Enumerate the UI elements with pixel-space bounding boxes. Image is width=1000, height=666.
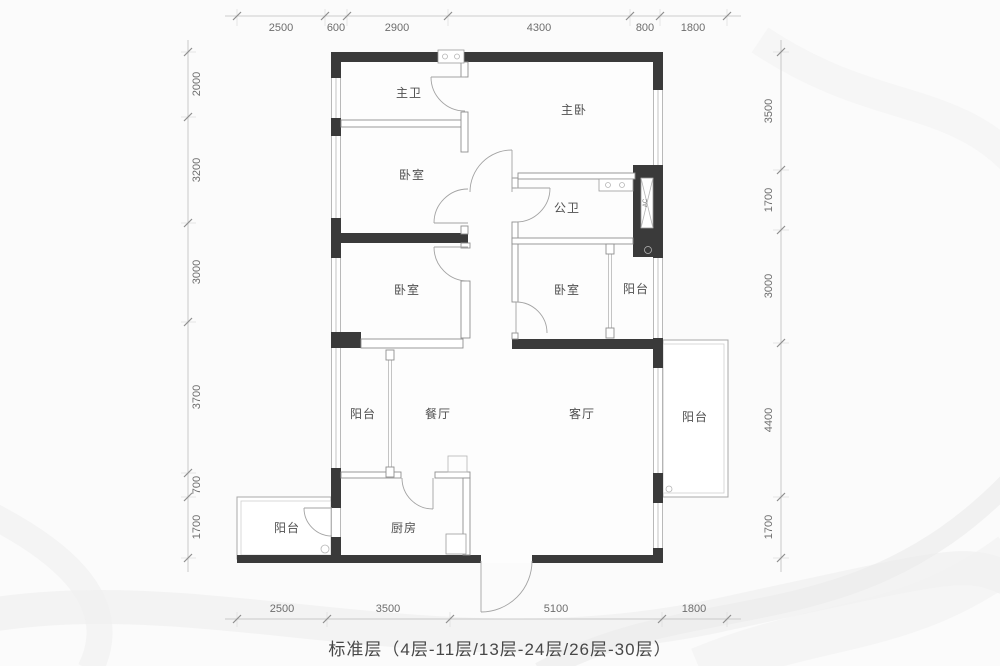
room-label-balcony-dining: 阳台 <box>350 406 376 421</box>
room-label-bedroom-mid-right: 卧室 <box>554 282 580 297</box>
dim-label-bottom-2: 5100 <box>544 603 568 615</box>
floorplan-canvas: AC 主卫 主卧 卧室 公卫 卧室 卧室 阳台 阳台 餐厅 客厅 阳台 阳台 厨… <box>0 0 1000 666</box>
ac-shaft: AC <box>641 178 653 228</box>
dimension-chain-right: 3500 1700 3000 4400 1700 <box>763 40 789 572</box>
dim-label-top-3: 4300 <box>527 22 551 34</box>
room-label-living: 客厅 <box>569 406 595 421</box>
dim-label-top-2: 2900 <box>385 22 409 34</box>
dim-label-left-5: 1700 <box>191 515 203 539</box>
dim-label-left-2: 3000 <box>191 260 203 284</box>
room-label-balcony-right: 阳台 <box>682 409 708 424</box>
dim-label-bottom-3: 1800 <box>682 603 706 615</box>
room-label-bedroom-upper-left: 卧室 <box>399 167 425 182</box>
dim-label-right-2: 3000 <box>763 274 775 298</box>
washbasin-master-bath <box>438 50 464 63</box>
room-label-master-bedroom: 主卧 <box>561 103 587 117</box>
room-label-kitchen: 厨房 <box>391 520 417 535</box>
room-label-public-bath: 公卫 <box>554 201 580 215</box>
plan-body <box>331 52 663 563</box>
dim-label-left-4: 700 <box>191 476 203 494</box>
dim-label-bottom-1: 3500 <box>376 603 400 615</box>
dim-label-right-0: 3500 <box>763 99 775 123</box>
dim-label-left-0: 2000 <box>191 72 203 96</box>
dim-label-right-1: 1700 <box>763 188 775 212</box>
dimension-chain-top: 2500 600 2900 4300 800 1800 <box>225 9 741 34</box>
dim-label-right-3: 4400 <box>763 408 775 432</box>
dim-label-left-1: 3200 <box>191 158 203 182</box>
dimension-chain-left: 2000 3200 3000 3700 700 1700 <box>181 40 203 572</box>
dim-label-left-3: 3700 <box>191 385 203 409</box>
room-label-balcony-mid-right: 阳台 <box>623 281 649 296</box>
floorplan-page: AC 主卫 主卧 卧室 公卫 卧室 卧室 阳台 阳台 餐厅 客厅 阳台 阳台 厨… <box>0 0 1000 666</box>
door-entry <box>481 561 532 612</box>
floor-caption: 标准层（4层-11层/13层-24层/26层-30层） <box>328 640 671 659</box>
dim-label-right-4: 1700 <box>763 515 775 539</box>
room-label-balcony-bottom-left: 阳台 <box>274 520 300 535</box>
dim-label-top-0: 2500 <box>269 22 293 34</box>
ac-label: AC <box>643 198 649 207</box>
dim-label-top-5: 1800 <box>681 22 705 34</box>
fridge-icon <box>446 534 466 554</box>
room-label-master-bath: 主卫 <box>396 86 422 100</box>
room-label-bedroom-mid-left: 卧室 <box>394 282 420 297</box>
washbasin-public-bath <box>599 179 633 191</box>
dim-label-top-4: 800 <box>636 22 654 34</box>
room-label-dining: 餐厅 <box>425 406 451 421</box>
dim-label-top-1: 600 <box>327 22 345 34</box>
dim-label-bottom-0: 2500 <box>270 603 294 615</box>
